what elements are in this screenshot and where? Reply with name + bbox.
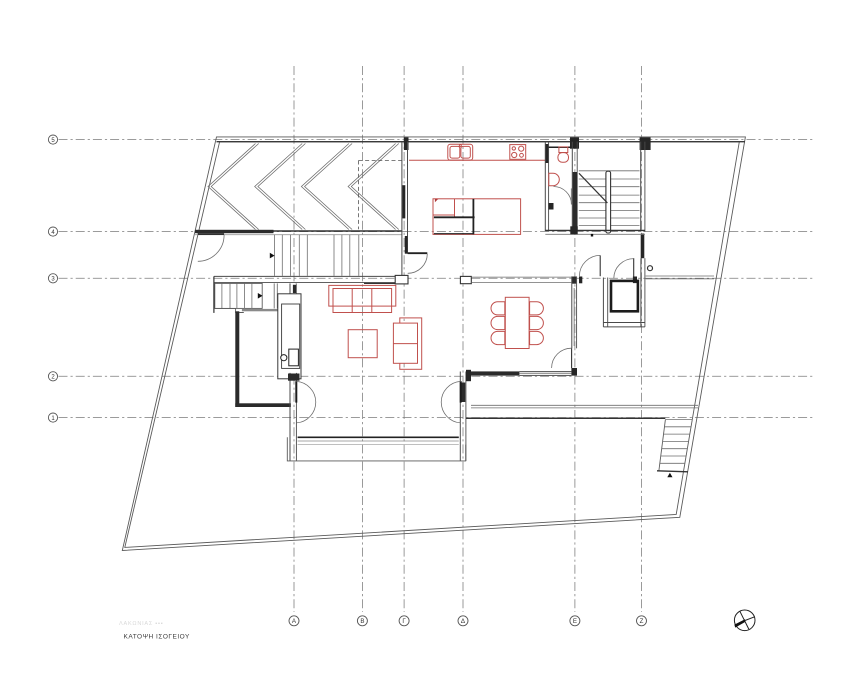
svg-text:Ζ: Ζ [640, 618, 644, 625]
svg-text:ΛΑΚΩΝΙΑΣ ▪▪▪: ΛΑΚΩΝΙΑΣ ▪▪▪ [119, 621, 164, 627]
svg-text:Β: Β [360, 618, 364, 625]
svg-text:Δ: Δ [461, 618, 465, 625]
svg-text:Γ: Γ [402, 618, 406, 625]
svg-text:ΚΑΤΟΨΗ ΙΣΟΓΕΙΟΥ: ΚΑΤΟΨΗ ΙΣΟΓΕΙΟΥ [124, 634, 190, 641]
svg-text:Ε: Ε [573, 618, 577, 625]
